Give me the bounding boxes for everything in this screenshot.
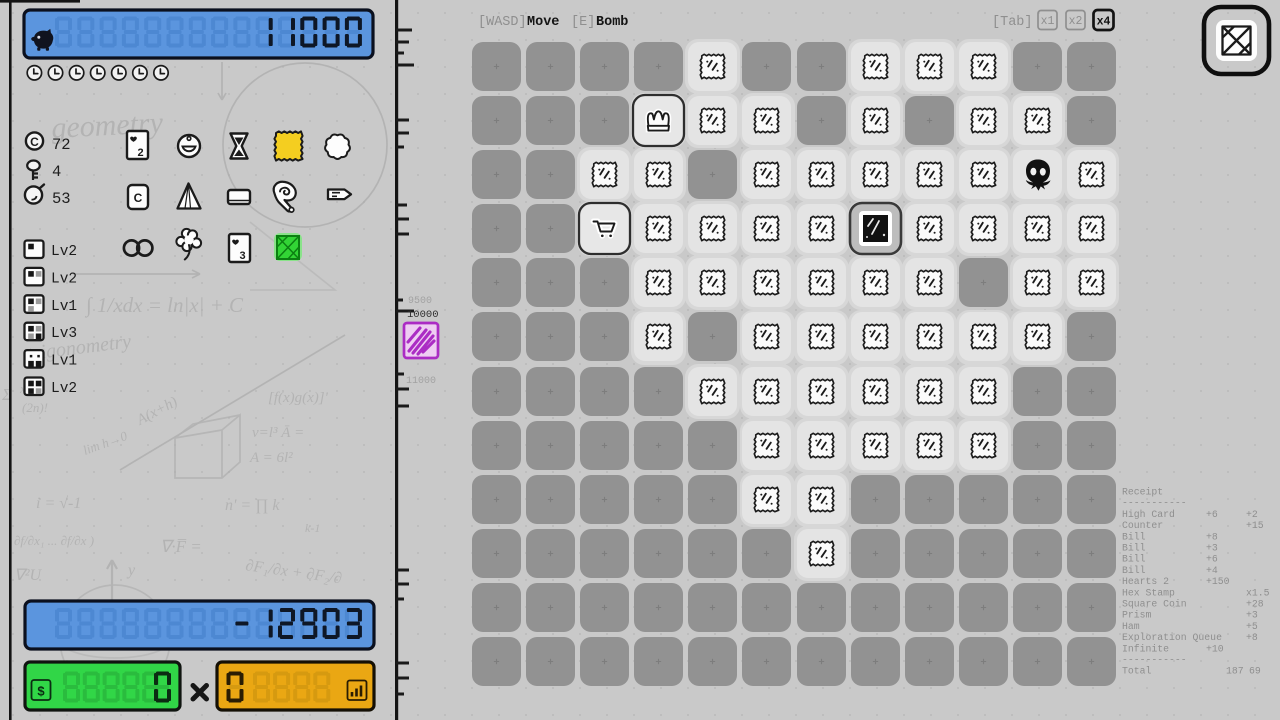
svg-text:k-1: k-1	[305, 521, 320, 535]
svg-text:[E]: [E]	[571, 15, 595, 30]
svg-text:∇·F̅ =: ∇·F̅ =	[160, 537, 202, 556]
svg-text:72: 72	[52, 136, 71, 154]
svg-text:A = 6l²: A = 6l²	[249, 450, 293, 466]
svg-text:+6: +6	[1206, 554, 1218, 565]
svg-text:Bill: Bill	[1122, 554, 1146, 565]
svg-text:-----------: -----------	[1122, 655, 1187, 666]
svg-text:Lv2: Lv2	[51, 271, 77, 287]
svg-text:y: y	[126, 562, 136, 579]
svg-text:+3: +3	[1246, 610, 1258, 621]
svg-text:Hex Stamp: Hex Stamp	[1122, 587, 1175, 598]
svg-text:+8: +8	[1246, 632, 1258, 643]
svg-text:+6: +6	[1206, 509, 1218, 520]
svg-text:-----------: -----------	[1122, 498, 1187, 509]
svg-text:9500: 9500	[408, 296, 432, 307]
svg-text:69: 69	[1249, 666, 1261, 677]
svg-text:n' = ∏ k: n' = ∏ k	[225, 497, 280, 514]
svg-text:+28: +28	[1246, 599, 1264, 610]
svg-text:Lv2: Lv2	[51, 381, 77, 397]
svg-text:Lv1: Lv1	[51, 354, 77, 370]
svg-text:Bill: Bill	[1122, 565, 1146, 576]
svg-text:i = √-1: i = √-1	[36, 495, 81, 512]
svg-text:Lv1: Lv1	[51, 299, 77, 315]
svg-text:(2n)!: (2n)!	[22, 400, 48, 415]
svg-text:11000: 11000	[406, 376, 436, 387]
svg-text:Square Coin: Square Coin	[1122, 599, 1187, 610]
svg-text:+10: +10	[1206, 643, 1224, 654]
svg-text:Total: Total	[1122, 666, 1152, 677]
svg-text:Bill: Bill	[1122, 543, 1146, 554]
svg-text:∇²U: ∇²U	[14, 567, 43, 584]
svg-text:Infinite: Infinite	[1122, 643, 1169, 654]
svg-text:x1.5: x1.5	[1246, 587, 1270, 598]
svg-text:[Tab]: [Tab]	[992, 15, 1033, 30]
svg-text:C: C	[134, 191, 143, 205]
svg-text:+150: +150	[1206, 576, 1230, 587]
svg-text:C: C	[30, 135, 39, 149]
svg-text:Move: Move	[527, 15, 559, 30]
svg-text:[WASD]: [WASD]	[478, 15, 527, 30]
svg-text:Bomb: Bomb	[596, 15, 628, 30]
svg-text:∫ 1/xdx = ln|x| + C: ∫ 1/xdx = ln|x| + C	[84, 293, 244, 318]
svg-text:Prism: Prism	[1122, 610, 1152, 621]
svg-text:Counter: Counter	[1122, 520, 1163, 531]
svg-text:Ham: Ham	[1122, 621, 1140, 632]
svg-text:Lv2: Lv2	[51, 244, 77, 260]
svg-text:Bill: Bill	[1122, 531, 1146, 542]
svg-text:Lv3: Lv3	[51, 326, 77, 342]
svg-text:x2: x2	[1069, 15, 1083, 28]
svg-text:High Card: High Card	[1122, 509, 1175, 520]
svg-text:Receipt: Receipt	[1122, 487, 1163, 498]
svg-text:+15: +15	[1246, 520, 1264, 531]
svg-text:[f(x)g(x)]': [f(x)g(x)]'	[268, 390, 329, 406]
svg-text:+4: +4	[1206, 565, 1218, 576]
svg-text:+2: +2	[1246, 509, 1258, 520]
svg-text:∂f/∂x₁ ... ∂f/∂x ): ∂f/∂x₁ ... ∂f/∂x )	[14, 533, 94, 548]
svg-text:+3: +3	[1206, 543, 1218, 554]
svg-text:2: 2	[137, 147, 143, 159]
svg-text:3: 3	[239, 250, 245, 262]
svg-text:v=l³ Ā =: v=l³ Ā =	[252, 425, 304, 441]
svg-text:$: $	[37, 684, 45, 699]
svg-text:Exploration Queue: Exploration Queue	[1122, 632, 1222, 643]
svg-text:+8: +8	[1206, 531, 1218, 542]
svg-text:187: 187	[1226, 666, 1244, 677]
svg-text:x4: x4	[1097, 16, 1111, 29]
svg-text:Hearts 2: Hearts 2	[1122, 576, 1169, 587]
svg-text:53: 53	[52, 190, 71, 208]
svg-text:10000: 10000	[407, 309, 439, 321]
svg-text:x1: x1	[1041, 15, 1055, 28]
svg-text:+5: +5	[1246, 621, 1258, 632]
svg-text:4: 4	[52, 163, 61, 181]
